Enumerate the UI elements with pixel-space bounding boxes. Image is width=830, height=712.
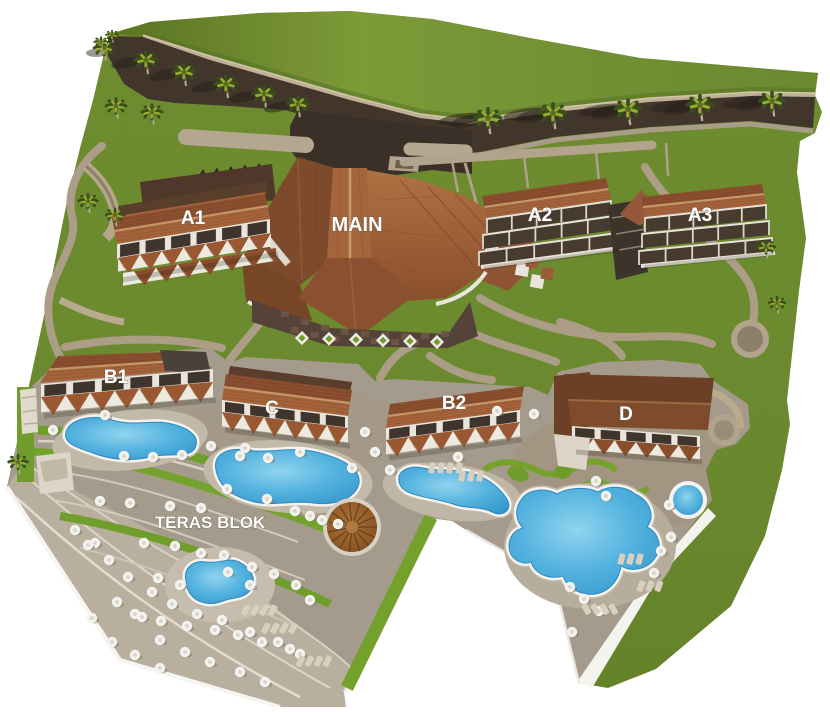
- svg-text:D: D: [619, 404, 633, 425]
- svg-text:A2: A2: [528, 205, 552, 226]
- svg-text:A3: A3: [688, 205, 712, 226]
- svg-text:MAIN: MAIN: [331, 214, 382, 236]
- svg-text:TERAS BLOK: TERAS BLOK: [155, 513, 266, 532]
- svg-text:B1: B1: [104, 367, 129, 388]
- svg-text:A1: A1: [181, 208, 206, 229]
- svg-text:B2: B2: [442, 393, 466, 414]
- svg-text:C: C: [265, 398, 279, 419]
